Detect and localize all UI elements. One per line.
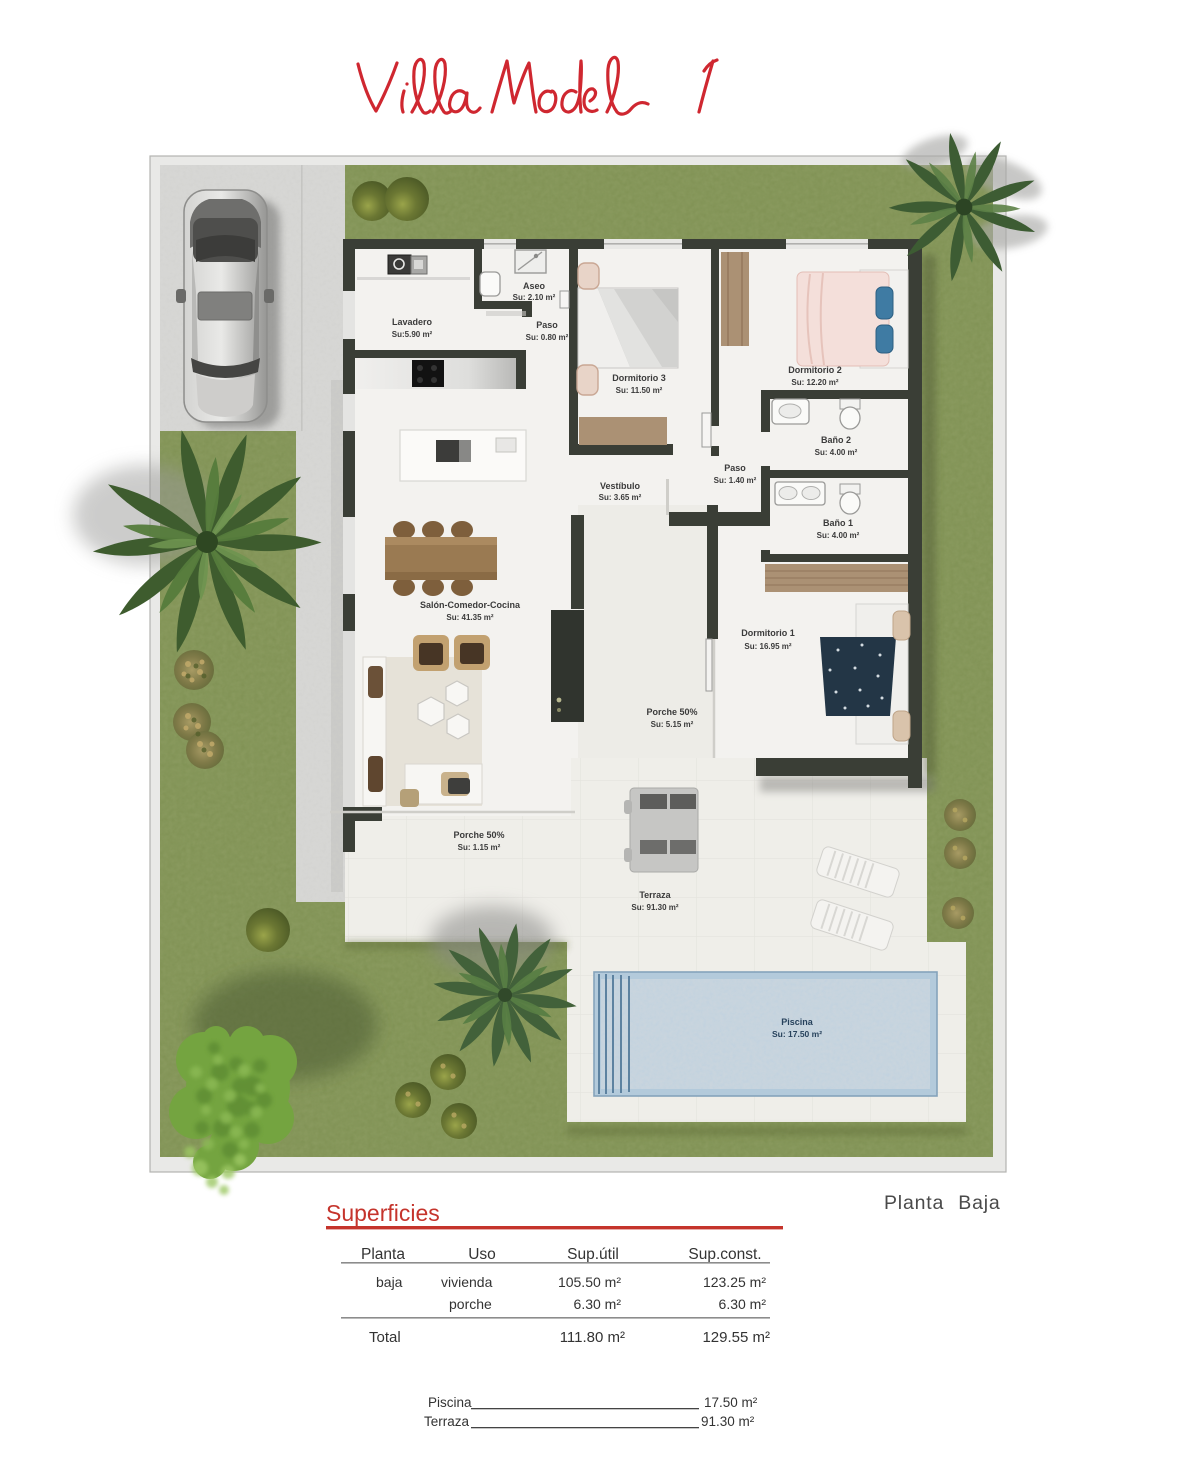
svg-text:Paso: Paso [724, 463, 746, 473]
svg-text:Sup.útil: Sup.útil [567, 1246, 619, 1263]
svg-text:Piscina: Piscina [428, 1395, 472, 1410]
svg-text:Su: 16.95 m²: Su: 16.95 m² [744, 642, 791, 651]
svg-text:Salón-Comedor-Cocina: Salón-Comedor-Cocina [420, 600, 521, 610]
svg-text:Porche 50%: Porche 50% [646, 707, 697, 717]
svg-text:Planta: Planta [361, 1246, 405, 1263]
svg-text:Su: 12.20 m²: Su: 12.20 m² [791, 378, 838, 387]
svg-text:Su:5.90 m²: Su:5.90 m² [392, 330, 433, 339]
svg-text:Su: 11.50 m²: Su: 11.50 m² [616, 386, 663, 395]
svg-text:Dormitorio 2: Dormitorio 2 [788, 365, 842, 375]
svg-text:Su: 3.65 m²: Su: 3.65 m² [599, 493, 642, 502]
svg-text:Dormitorio 1: Dormitorio 1 [741, 628, 795, 638]
svg-text:Su: 4.00 m²: Su: 4.00 m² [817, 531, 860, 540]
svg-text:Su: 0.80 m²: Su: 0.80 m² [526, 333, 569, 342]
svg-text:91.30 m²: 91.30 m² [701, 1414, 755, 1429]
svg-text:129.55 m²: 129.55 m² [702, 1329, 770, 1346]
svg-text:Su: 2.10 m²: Su: 2.10 m² [513, 293, 556, 302]
svg-text:Sup.const.: Sup.const. [688, 1246, 761, 1263]
svg-text:Su: 17.50 m²: Su: 17.50 m² [772, 1029, 822, 1039]
svg-text:Su: 5.15 m²: Su: 5.15 m² [651, 720, 694, 729]
svg-text:Su: 1.15 m²: Su: 1.15 m² [458, 843, 501, 852]
svg-text:vivienda: vivienda [441, 1274, 493, 1290]
svg-text:Su: 4.00 m²: Su: 4.00 m² [815, 448, 858, 457]
svg-text:123.25 m²: 123.25 m² [703, 1274, 766, 1290]
svg-text:Su: 41.35 m²: Su: 41.35 m² [446, 613, 493, 622]
svg-text:Total: Total [369, 1329, 401, 1346]
svg-text:Uso: Uso [468, 1246, 496, 1263]
svg-text:Baño 1: Baño 1 [823, 518, 853, 528]
svg-text:Vestíbulo: Vestíbulo [600, 481, 641, 491]
svg-text:105.50 m²: 105.50 m² [558, 1274, 621, 1290]
svg-text:Terraza: Terraza [424, 1414, 470, 1429]
svg-text:Planta Baja: Planta Baja [884, 1192, 1001, 1214]
svg-text:Superficies: Superficies [326, 1200, 440, 1226]
svg-text:Baño 2: Baño 2 [821, 435, 851, 445]
svg-text:6.30 m²: 6.30 m² [574, 1296, 622, 1312]
svg-text:17.50 m²: 17.50 m² [704, 1395, 758, 1410]
svg-text:Su: 91.30 m²: Su: 91.30 m² [631, 903, 678, 912]
svg-text:Paso: Paso [536, 320, 558, 330]
svg-text:Su: 1.40 m²: Su: 1.40 m² [714, 476, 757, 485]
svg-text:Terraza: Terraza [639, 890, 671, 900]
svg-text:Aseo: Aseo [523, 281, 546, 291]
svg-text:Porche 50%: Porche 50% [453, 830, 504, 840]
svg-text:6.30 m²: 6.30 m² [719, 1296, 767, 1312]
svg-text:Piscina: Piscina [781, 1017, 814, 1027]
svg-text:Dormitorio 3: Dormitorio 3 [612, 373, 666, 383]
svg-text:111.80 m²: 111.80 m² [560, 1329, 625, 1346]
svg-text:baja: baja [376, 1274, 403, 1290]
svg-text:porche: porche [449, 1296, 492, 1312]
svg-text:Lavadero: Lavadero [392, 317, 433, 327]
